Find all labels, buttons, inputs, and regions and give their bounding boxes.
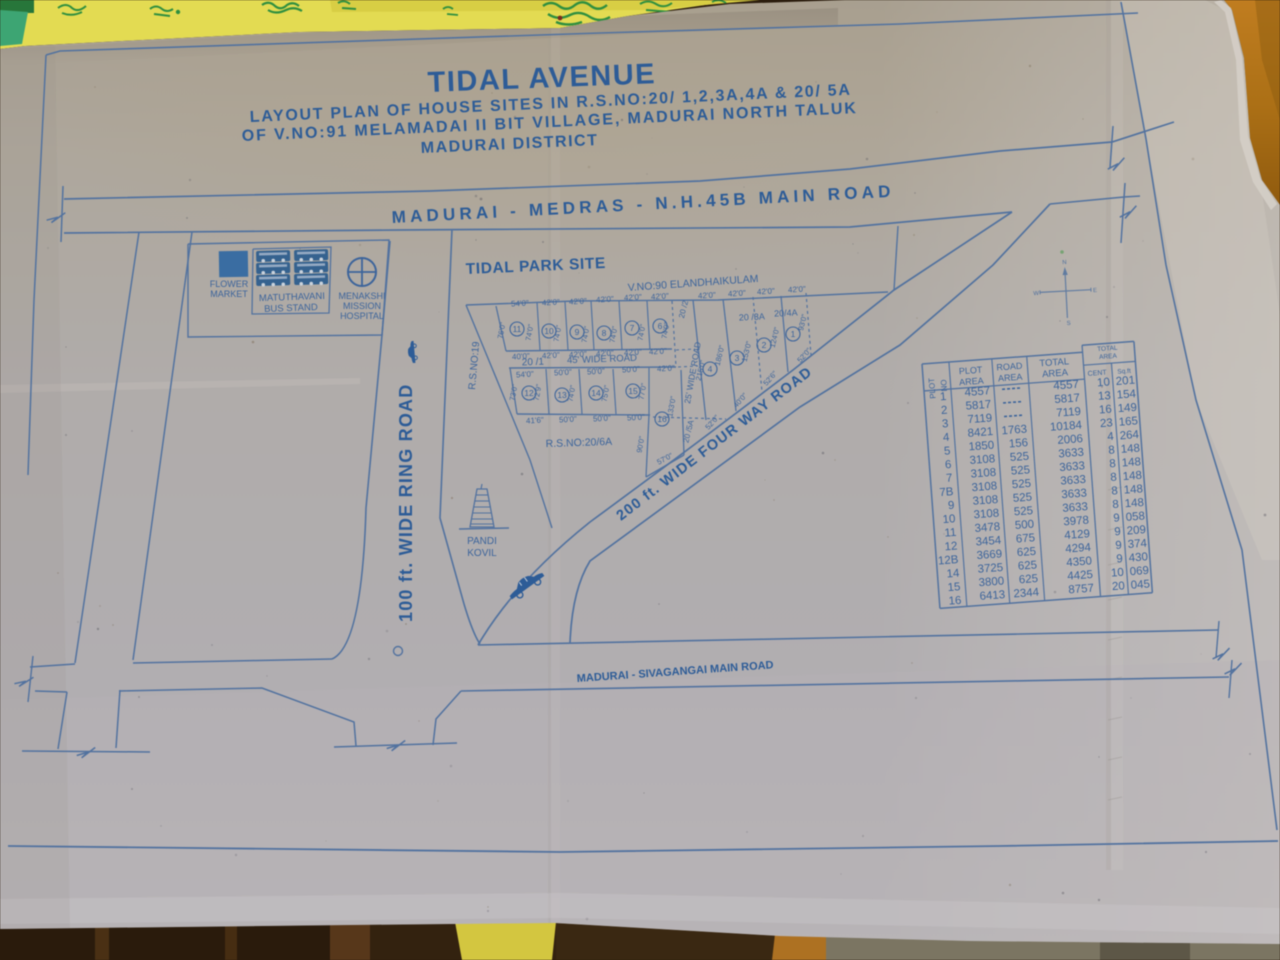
svg-text:42'0": 42'0" bbox=[651, 292, 669, 302]
svg-text:2344: 2344 bbox=[1013, 587, 1040, 601]
svg-text:42'0": 42'0" bbox=[649, 347, 667, 357]
svg-text:148: 148 bbox=[1120, 443, 1140, 456]
svg-text:3633: 3633 bbox=[1058, 447, 1084, 461]
svg-text:42'0": 42'0" bbox=[542, 351, 560, 361]
svg-text:9: 9 bbox=[1113, 512, 1120, 524]
svg-text:4129: 4129 bbox=[1064, 528, 1090, 542]
svg-text:264: 264 bbox=[1119, 429, 1140, 442]
svg-text:4: 4 bbox=[708, 364, 713, 374]
svg-text:AREA: AREA bbox=[998, 372, 1023, 384]
svg-text:23: 23 bbox=[1100, 417, 1114, 430]
svg-text:13: 13 bbox=[557, 390, 567, 400]
svg-text:W: W bbox=[1033, 291, 1039, 297]
svg-text:42'0": 42'0" bbox=[757, 287, 775, 297]
svg-text:148: 148 bbox=[1123, 483, 1143, 496]
svg-text:11: 11 bbox=[513, 324, 522, 334]
svg-text:4557: 4557 bbox=[964, 385, 990, 399]
svg-text:MISSION: MISSION bbox=[343, 301, 381, 311]
svg-text:8: 8 bbox=[1109, 458, 1116, 470]
svg-text:42'0": 42'0" bbox=[657, 364, 675, 374]
svg-text:8: 8 bbox=[1112, 499, 1119, 511]
svg-text:3108: 3108 bbox=[970, 467, 996, 481]
svg-text:5: 5 bbox=[944, 445, 951, 457]
svg-text:9: 9 bbox=[1116, 553, 1123, 565]
svg-text:3: 3 bbox=[735, 353, 740, 363]
svg-text:3633: 3633 bbox=[1060, 474, 1086, 488]
svg-text:N: N bbox=[1062, 260, 1067, 266]
svg-text:2: 2 bbox=[941, 405, 948, 417]
svg-text:154: 154 bbox=[1116, 388, 1137, 401]
svg-text:525: 525 bbox=[1011, 478, 1031, 491]
svg-text:9: 9 bbox=[948, 500, 955, 512]
svg-text:525: 525 bbox=[1010, 464, 1030, 477]
svg-text:PLOT: PLOT bbox=[927, 377, 938, 399]
svg-text:7119: 7119 bbox=[1056, 406, 1082, 420]
svg-text:14: 14 bbox=[946, 568, 960, 581]
svg-text:HOSPITAL: HOSPITAL bbox=[340, 311, 384, 321]
svg-text:209: 209 bbox=[1126, 524, 1146, 537]
svg-text:100 ft. WIDE RING ROAD: 100 ft. WIDE RING ROAD bbox=[396, 384, 416, 622]
svg-text:42'0": 42'0" bbox=[728, 289, 746, 299]
svg-text:3108: 3108 bbox=[971, 480, 997, 494]
svg-text:2006: 2006 bbox=[1057, 433, 1083, 447]
svg-text:54'0": 54'0" bbox=[511, 299, 529, 309]
svg-text:42'0": 42'0" bbox=[542, 298, 560, 308]
svg-text:3725: 3725 bbox=[977, 562, 1003, 576]
svg-text:50'0": 50'0" bbox=[627, 413, 645, 423]
svg-text:058: 058 bbox=[1125, 510, 1145, 523]
svg-text:16: 16 bbox=[1099, 404, 1113, 417]
svg-text:50'0": 50'0" bbox=[622, 365, 640, 375]
svg-text:3800: 3800 bbox=[978, 575, 1004, 589]
svg-text:PLOT: PLOT bbox=[959, 365, 984, 377]
svg-text:1: 1 bbox=[940, 391, 947, 403]
svg-text:7B: 7B bbox=[939, 486, 954, 499]
svg-text:1850: 1850 bbox=[968, 440, 994, 454]
svg-text:AREA: AREA bbox=[1099, 353, 1118, 361]
svg-text:9: 9 bbox=[575, 327, 580, 337]
svg-text:10: 10 bbox=[544, 326, 554, 336]
svg-text:10: 10 bbox=[1097, 376, 1111, 389]
svg-text:525: 525 bbox=[1013, 505, 1033, 518]
svg-text:4350: 4350 bbox=[1066, 555, 1092, 569]
svg-text:E: E bbox=[1093, 288, 1097, 294]
svg-text:8757: 8757 bbox=[1068, 583, 1094, 597]
svg-text:50'0": 50'0" bbox=[593, 414, 611, 424]
svg-text:9: 9 bbox=[1114, 526, 1121, 538]
svg-text:41'6": 41'6" bbox=[526, 416, 544, 426]
svg-text:625: 625 bbox=[1018, 573, 1038, 586]
svg-text:069: 069 bbox=[1129, 565, 1149, 578]
svg-text:12: 12 bbox=[524, 388, 534, 398]
svg-text:165: 165 bbox=[1118, 415, 1138, 428]
svg-text:BUS STAND: BUS STAND bbox=[264, 302, 318, 315]
svg-text:42'0": 42'0" bbox=[596, 295, 614, 305]
svg-text:045: 045 bbox=[1130, 578, 1150, 591]
svg-text:20/4A: 20/4A bbox=[774, 307, 798, 318]
svg-text:6413: 6413 bbox=[979, 589, 1005, 603]
svg-text:15: 15 bbox=[947, 581, 961, 594]
svg-text:20: 20 bbox=[1112, 580, 1126, 593]
svg-text:FLOWER: FLOWER bbox=[210, 279, 249, 289]
svg-text:8: 8 bbox=[1110, 472, 1117, 484]
svg-text:156: 156 bbox=[1009, 437, 1029, 450]
svg-text:3978: 3978 bbox=[1063, 515, 1089, 529]
svg-text:3633: 3633 bbox=[1062, 501, 1088, 515]
svg-text:1763: 1763 bbox=[1001, 423, 1027, 437]
svg-text:R.S.NO:20/6A: R.S.NO:20/6A bbox=[545, 436, 612, 450]
svg-text:3: 3 bbox=[942, 418, 949, 430]
svg-text:14: 14 bbox=[591, 388, 601, 398]
svg-text:201: 201 bbox=[1115, 375, 1135, 388]
svg-text:12B: 12B bbox=[938, 554, 960, 567]
svg-text:KOVIL: KOVIL bbox=[467, 548, 497, 559]
svg-text:4425: 4425 bbox=[1067, 569, 1093, 583]
svg-text:12: 12 bbox=[944, 540, 958, 553]
svg-text:10: 10 bbox=[1111, 567, 1125, 580]
svg-text:2: 2 bbox=[762, 340, 767, 350]
svg-text:8421: 8421 bbox=[967, 426, 993, 440]
svg-text:149: 149 bbox=[1117, 402, 1137, 415]
svg-text:500: 500 bbox=[1014, 519, 1034, 532]
svg-text:42'0": 42'0" bbox=[698, 291, 716, 301]
svg-text:6: 6 bbox=[945, 459, 952, 471]
svg-text:5817: 5817 bbox=[1054, 392, 1080, 406]
svg-text:10184: 10184 bbox=[1050, 419, 1083, 433]
svg-text:20 /3A: 20 /3A bbox=[739, 311, 766, 322]
svg-text:148: 148 bbox=[1124, 497, 1144, 510]
svg-text:625: 625 bbox=[1017, 559, 1037, 572]
svg-text:7: 7 bbox=[630, 323, 635, 333]
svg-text:NO: NO bbox=[939, 379, 949, 392]
svg-text:374: 374 bbox=[1127, 538, 1148, 551]
svg-text:54'0": 54'0" bbox=[516, 370, 534, 380]
svg-text:3108: 3108 bbox=[969, 453, 995, 467]
svg-text:15: 15 bbox=[628, 386, 638, 396]
svg-text:MARKET: MARKET bbox=[210, 289, 248, 299]
svg-text:PANDI: PANDI bbox=[467, 536, 497, 547]
svg-text:148: 148 bbox=[1121, 456, 1141, 469]
svg-text:13: 13 bbox=[1098, 390, 1112, 403]
svg-text:50'0": 50'0" bbox=[554, 368, 572, 378]
svg-text:625: 625 bbox=[1016, 546, 1036, 559]
svg-text:6: 6 bbox=[658, 321, 663, 331]
svg-text:3478: 3478 bbox=[974, 521, 1000, 535]
svg-text:148: 148 bbox=[1122, 470, 1142, 483]
svg-text:3633: 3633 bbox=[1061, 487, 1087, 501]
svg-text:3108: 3108 bbox=[972, 494, 998, 508]
svg-text:7: 7 bbox=[946, 472, 953, 484]
svg-text:8: 8 bbox=[1108, 444, 1115, 456]
svg-text:42'0": 42'0" bbox=[788, 285, 806, 295]
svg-text:525: 525 bbox=[1012, 491, 1032, 504]
svg-text:S: S bbox=[1067, 321, 1071, 327]
svg-text:16: 16 bbox=[948, 595, 962, 608]
svg-text:3669: 3669 bbox=[976, 548, 1002, 562]
svg-text:20 /1: 20 /1 bbox=[522, 357, 545, 369]
svg-text:50'0": 50'0" bbox=[587, 367, 605, 377]
svg-text:675: 675 bbox=[1015, 532, 1035, 545]
svg-text:5817: 5817 bbox=[965, 399, 991, 413]
svg-text:1: 1 bbox=[791, 329, 796, 339]
svg-text:7119: 7119 bbox=[967, 412, 993, 426]
svg-text:ROAD: ROAD bbox=[996, 361, 1023, 373]
svg-text:11: 11 bbox=[944, 527, 957, 540]
svg-text:8: 8 bbox=[1111, 485, 1118, 497]
svg-text:3633: 3633 bbox=[1059, 460, 1085, 474]
svg-text:525: 525 bbox=[1009, 451, 1029, 464]
svg-text:430: 430 bbox=[1128, 551, 1148, 564]
svg-text:AREA: AREA bbox=[1042, 367, 1069, 380]
svg-text:50'0": 50'0" bbox=[559, 415, 577, 425]
svg-text:4557: 4557 bbox=[1053, 379, 1079, 393]
svg-text:MENAKSHI: MENAKSHI bbox=[338, 291, 385, 301]
svg-text:42'0": 42'0" bbox=[569, 297, 587, 307]
svg-text:3454: 3454 bbox=[975, 535, 1002, 549]
svg-text:3108: 3108 bbox=[973, 508, 999, 522]
svg-text:4294: 4294 bbox=[1065, 542, 1092, 556]
svg-text:42'0": 42'0" bbox=[624, 293, 642, 303]
svg-text:8: 8 bbox=[602, 328, 607, 338]
svg-text:10: 10 bbox=[942, 513, 956, 526]
svg-text:9: 9 bbox=[1115, 539, 1122, 551]
